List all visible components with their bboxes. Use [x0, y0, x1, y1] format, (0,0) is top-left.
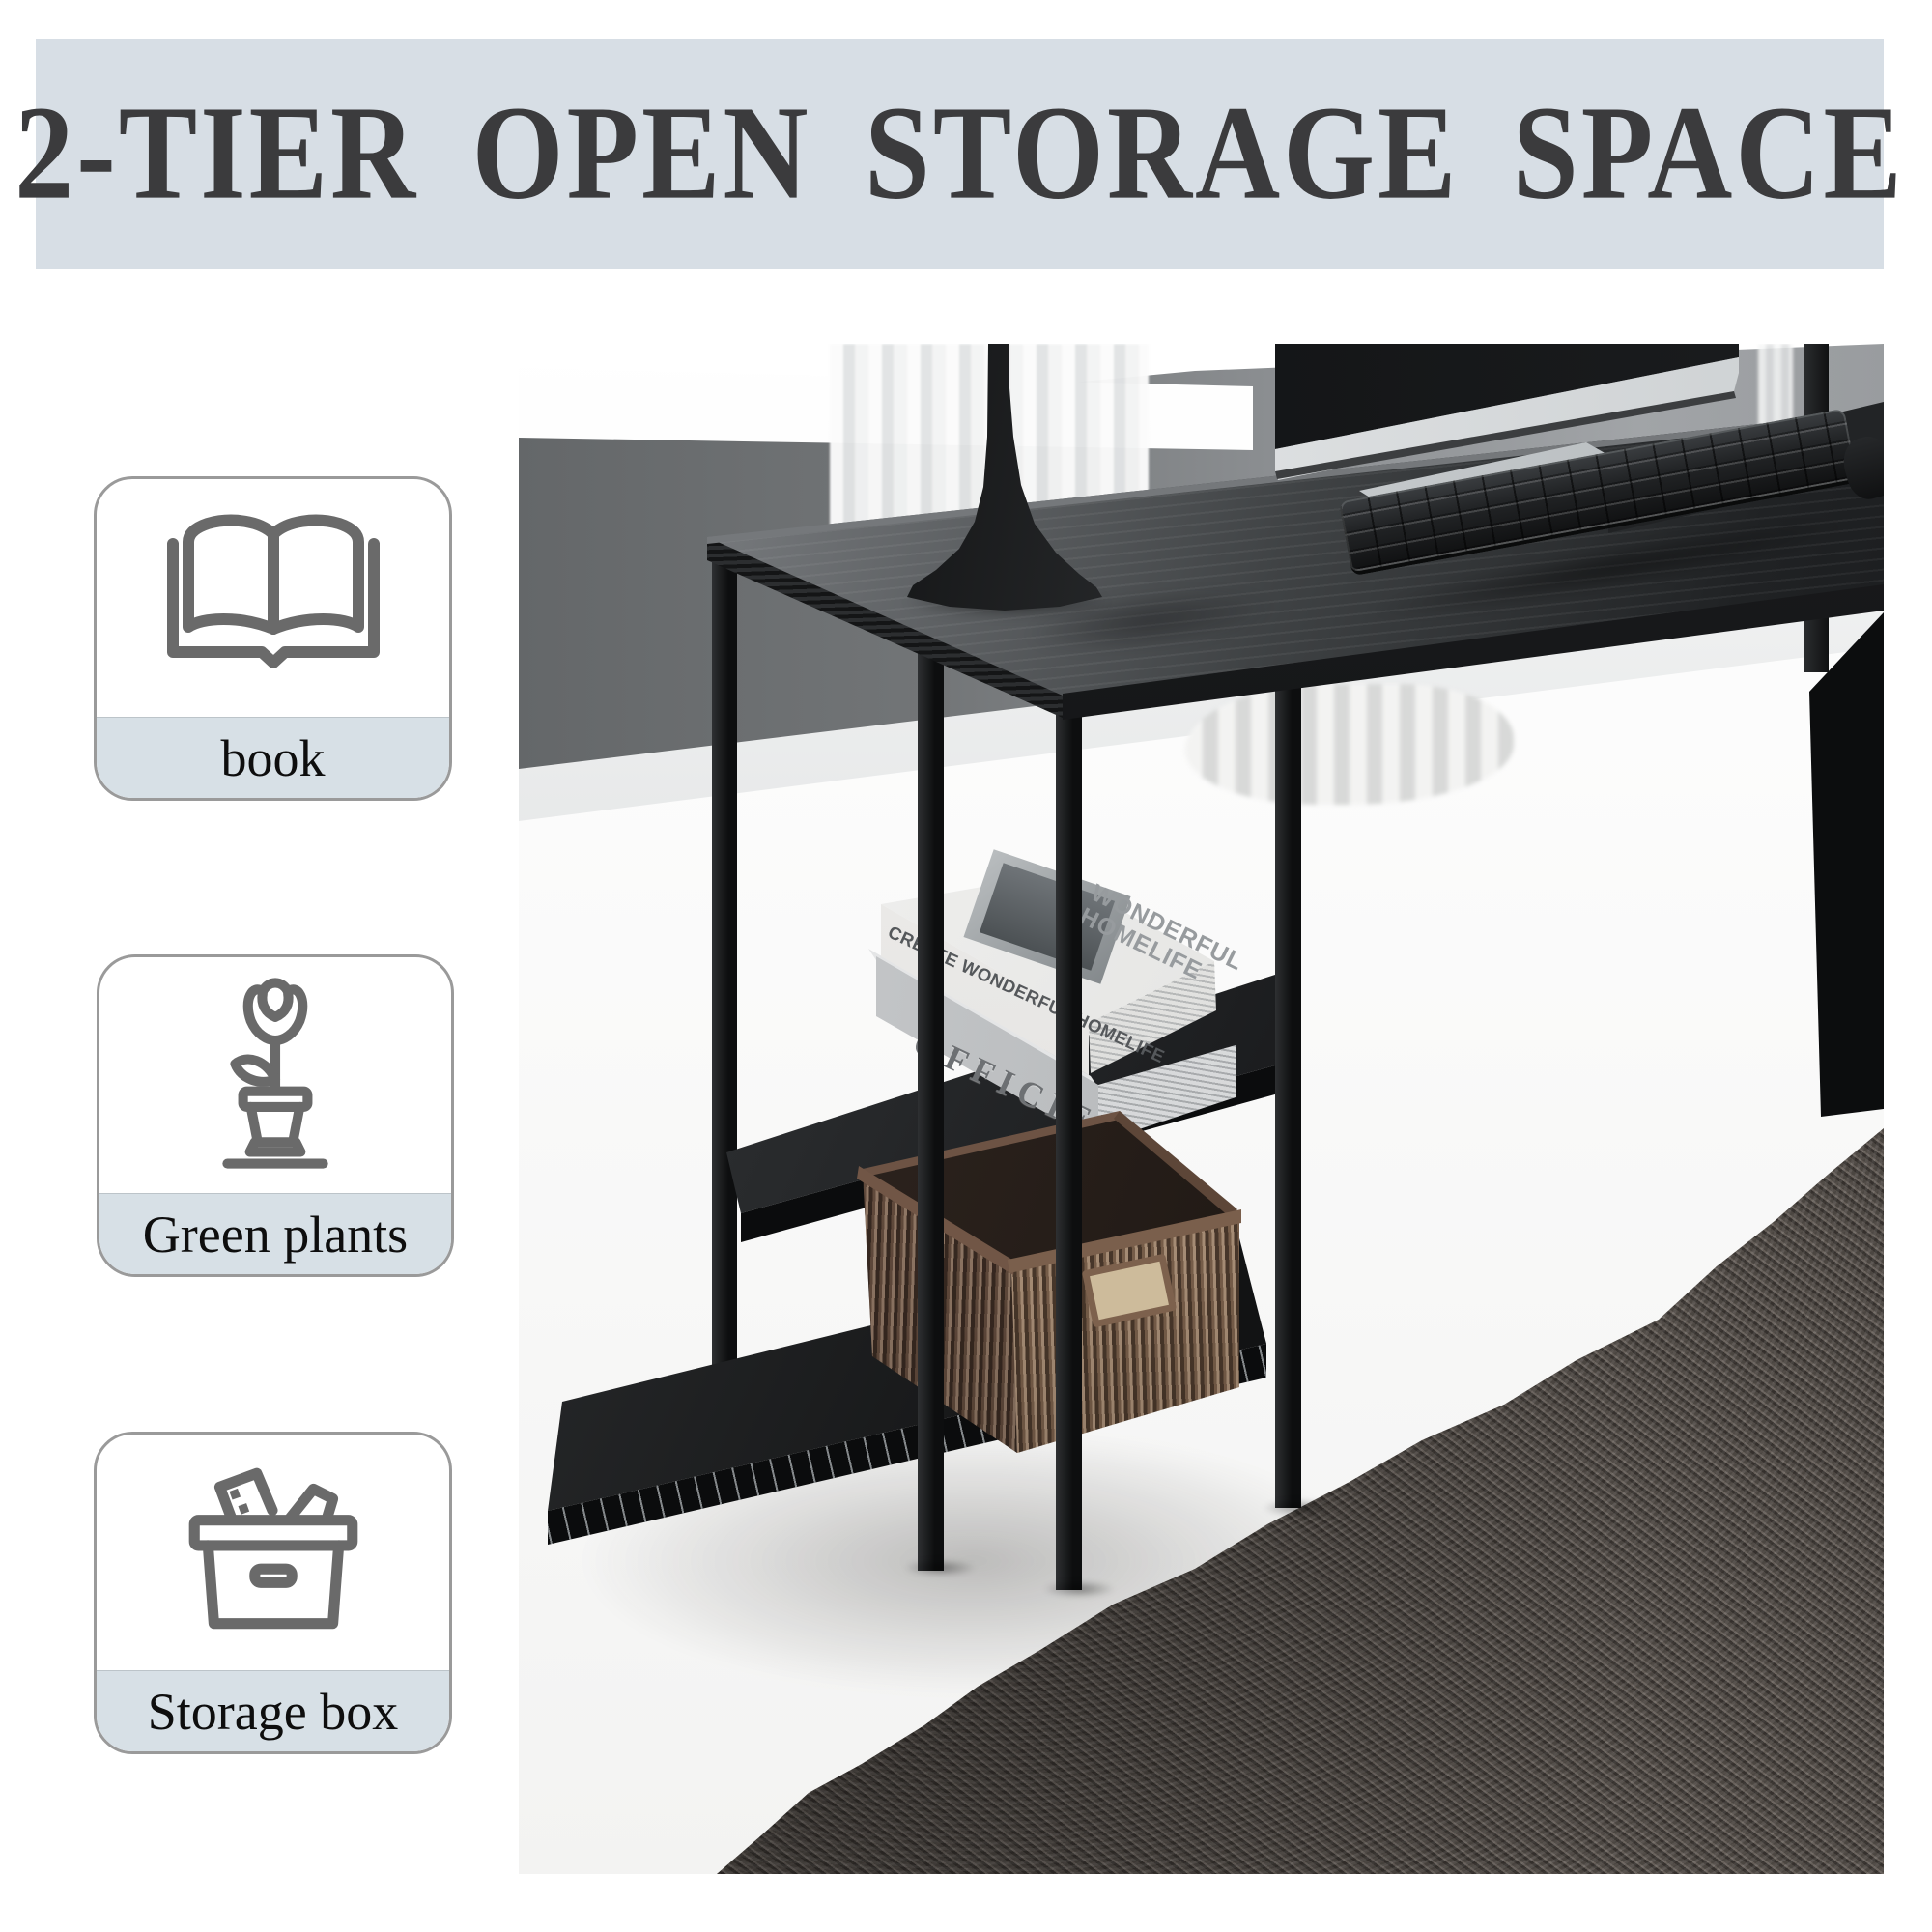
- curtain-puddle: [1185, 684, 1514, 805]
- desk-leg-front-left: [918, 629, 944, 1571]
- potted-plant-icon: [192, 970, 358, 1180]
- feature-label-book: book: [221, 728, 326, 788]
- book-label-strip: book: [97, 717, 449, 798]
- feature-card-book: book: [94, 476, 452, 801]
- storage-label-strip: Storage box: [97, 1670, 449, 1751]
- feature-label-plants: Green plants: [143, 1205, 408, 1264]
- plant-icon-area: [99, 957, 451, 1193]
- desk-leg-front-right: [1275, 663, 1301, 1508]
- feature-label-storage: Storage box: [148, 1682, 398, 1742]
- feature-card-storage: Storage box: [94, 1432, 452, 1754]
- product-photo: WONDERFUL HOMELIFE CREATE WONDERFUL HOME…: [519, 344, 1884, 1874]
- header-banner: 2-TIER OPEN STORAGE SPACE: [36, 39, 1884, 269]
- feature-card-plants: Green plants: [97, 954, 454, 1277]
- leg-shadow: [903, 1559, 977, 1577]
- open-book-icon: [157, 511, 389, 685]
- storage-icon-area: [97, 1435, 449, 1670]
- storage-box-icon: [171, 1460, 376, 1645]
- plants-label-strip: Green plants: [99, 1193, 451, 1274]
- desk-leg-back-left: [712, 547, 737, 1426]
- book-icon-area: [97, 479, 449, 717]
- leg-shadow: [1042, 1580, 1116, 1598]
- leg-shadow: [1263, 1499, 1332, 1517]
- page-title: 2-TIER OPEN STORAGE SPACE: [14, 76, 1905, 231]
- desk-leg-front-mid: [1056, 692, 1082, 1590]
